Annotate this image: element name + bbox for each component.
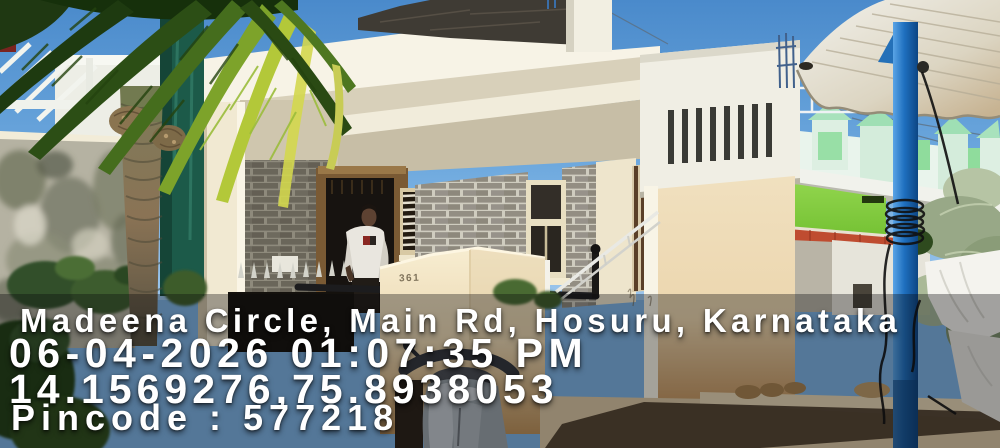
watermark-pincode: Pincode : 577218 <box>11 400 399 436</box>
rebar <box>776 33 797 88</box>
geotagged-photo: 361 Madeena Circle, Main Rd, Hosuru, Kar… <box>0 0 1000 448</box>
pole-fitting <box>917 61 929 73</box>
house-number: 361 <box>399 273 421 285</box>
bird-silhouette <box>799 62 813 70</box>
